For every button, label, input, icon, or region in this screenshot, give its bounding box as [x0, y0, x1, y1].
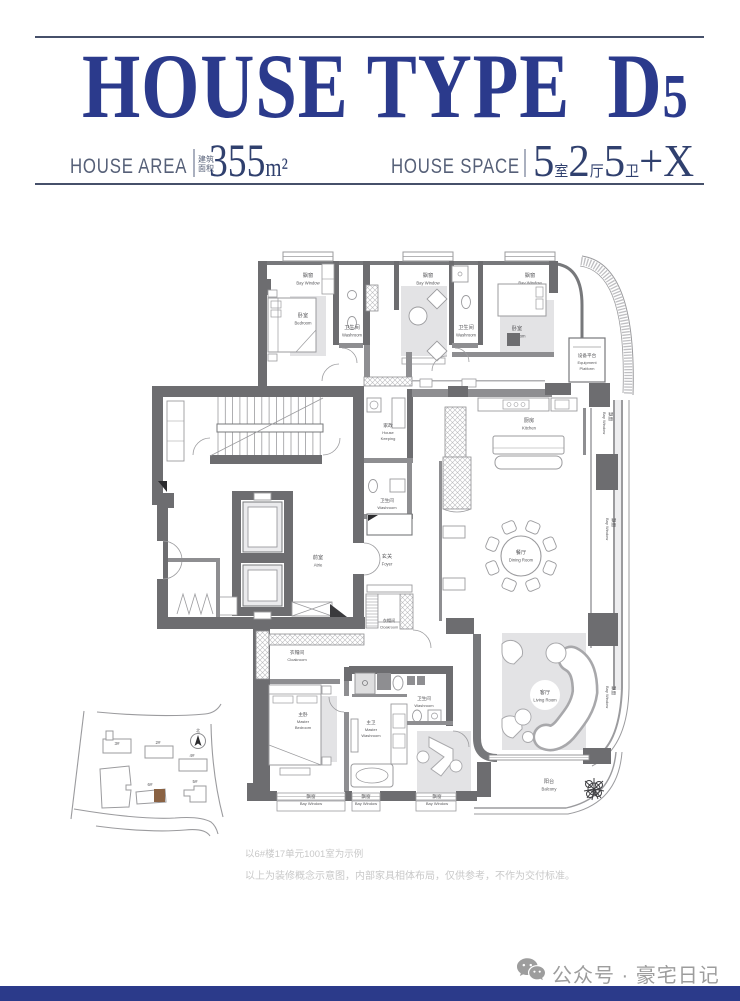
svg-text:飘窗: 飘窗 — [423, 271, 433, 279]
svg-text:Cloakroom: Cloakroom — [287, 657, 307, 662]
svg-text:阳台: 阳台 — [544, 777, 554, 785]
svg-text:设备平台: 设备平台 — [578, 352, 597, 359]
svg-text:卫生间: 卫生间 — [344, 323, 360, 331]
svg-text:餐厅: 餐厅 — [516, 548, 526, 556]
svg-text:Kitchen: Kitchen — [522, 425, 537, 430]
svg-text:飘窗: 飘窗 — [525, 271, 535, 279]
svg-text:Atrie: Atrie — [314, 562, 323, 567]
svg-text:飘窗: 飘窗 — [610, 518, 617, 528]
svg-text:Bay Window: Bay Window — [355, 801, 377, 806]
svg-text:4#: 4# — [189, 753, 195, 758]
svg-text:Bay Window: Bay Window — [296, 280, 320, 285]
svg-text:飘窗: 飘窗 — [432, 793, 442, 800]
svg-text:飘窗: 飘窗 — [607, 412, 614, 422]
svg-text:家政: 家政 — [383, 422, 393, 429]
svg-text:Dining Room: Dining Room — [509, 557, 534, 562]
svg-text:卧室: 卧室 — [298, 311, 308, 319]
svg-text:Bay Window: Bay Window — [605, 518, 610, 540]
svg-text:Bedroom: Bedroom — [295, 320, 313, 325]
svg-text:前室: 前室 — [313, 553, 323, 561]
svg-text:Living Room: Living Room — [533, 697, 557, 702]
svg-text:House: House — [382, 430, 394, 435]
svg-text:Bay Window: Bay Window — [426, 801, 448, 806]
svg-text:2#: 2# — [155, 740, 161, 745]
svg-text:玄关: 玄关 — [382, 552, 392, 560]
svg-text:卫生间: 卫生间 — [417, 695, 431, 702]
svg-text:Washroom: Washroom — [456, 332, 477, 337]
svg-text:衣帽间: 衣帽间 — [383, 617, 396, 624]
svg-text:Bay Window: Bay Window — [416, 280, 440, 285]
svg-text:Foyer: Foyer — [382, 561, 393, 566]
svg-text:Washroom: Washroom — [342, 332, 363, 337]
svg-text:Bay Window: Bay Window — [605, 686, 610, 708]
svg-text:Master: Master — [365, 727, 378, 732]
svg-text:飘窗: 飘窗 — [361, 793, 371, 800]
svg-text:衣帽间: 衣帽间 — [290, 649, 305, 656]
svg-text:主卫: 主卫 — [366, 719, 376, 725]
svg-text:Washroom: Washroom — [414, 703, 434, 708]
svg-text:卫生间: 卫生间 — [380, 497, 394, 504]
svg-text:飘窗: 飘窗 — [610, 686, 617, 696]
svg-text:飘窗: 飘窗 — [303, 271, 313, 279]
svg-text:主卧: 主卧 — [298, 711, 308, 718]
svg-text:客厅: 客厅 — [540, 688, 550, 696]
svg-text:Washroom: Washroom — [377, 505, 397, 510]
svg-text:卧室: 卧室 — [512, 324, 522, 332]
svg-text:Bedroom: Bedroom — [295, 725, 312, 730]
svg-text:飘窗: 飘窗 — [306, 793, 316, 800]
svg-text:Balcony: Balcony — [542, 786, 558, 791]
svg-text:厨房: 厨房 — [524, 416, 534, 424]
svg-text:北: 北 — [196, 727, 200, 733]
svg-text:Keeping: Keeping — [381, 436, 396, 441]
svg-text:5#: 5# — [192, 779, 198, 784]
svg-text:Platform: Platform — [580, 366, 596, 371]
svg-text:卫生间: 卫生间 — [458, 323, 474, 331]
svg-text:6#: 6# — [147, 782, 153, 787]
svg-text:3#: 3# — [114, 741, 120, 746]
svg-text:Bay Window: Bay Window — [602, 412, 607, 434]
svg-text:Bay Window: Bay Window — [300, 801, 322, 806]
svg-text:Washroom: Washroom — [361, 733, 381, 738]
svg-text:Cloakroom: Cloakroom — [380, 625, 398, 629]
svg-text:Equipment: Equipment — [577, 360, 597, 365]
svg-text:Master: Master — [297, 719, 310, 724]
